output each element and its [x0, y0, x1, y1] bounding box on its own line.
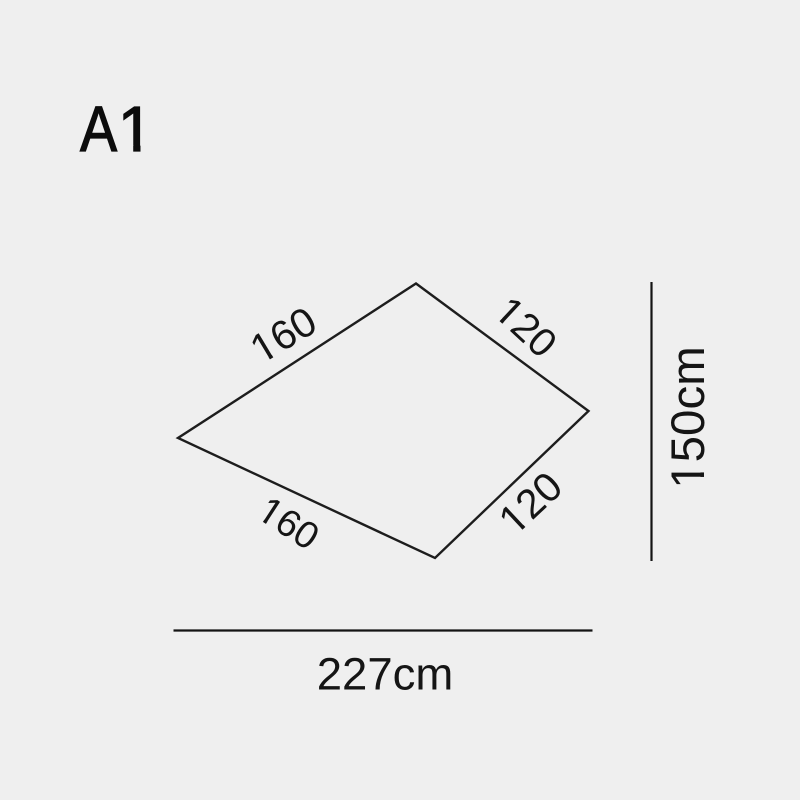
- svg-text:A: A: [80, 93, 117, 164]
- svg-text:150cm: 150cm: [662, 346, 715, 489]
- svg-text:227cm: 227cm: [317, 649, 454, 700]
- svg-text:1: 1: [118, 93, 154, 165]
